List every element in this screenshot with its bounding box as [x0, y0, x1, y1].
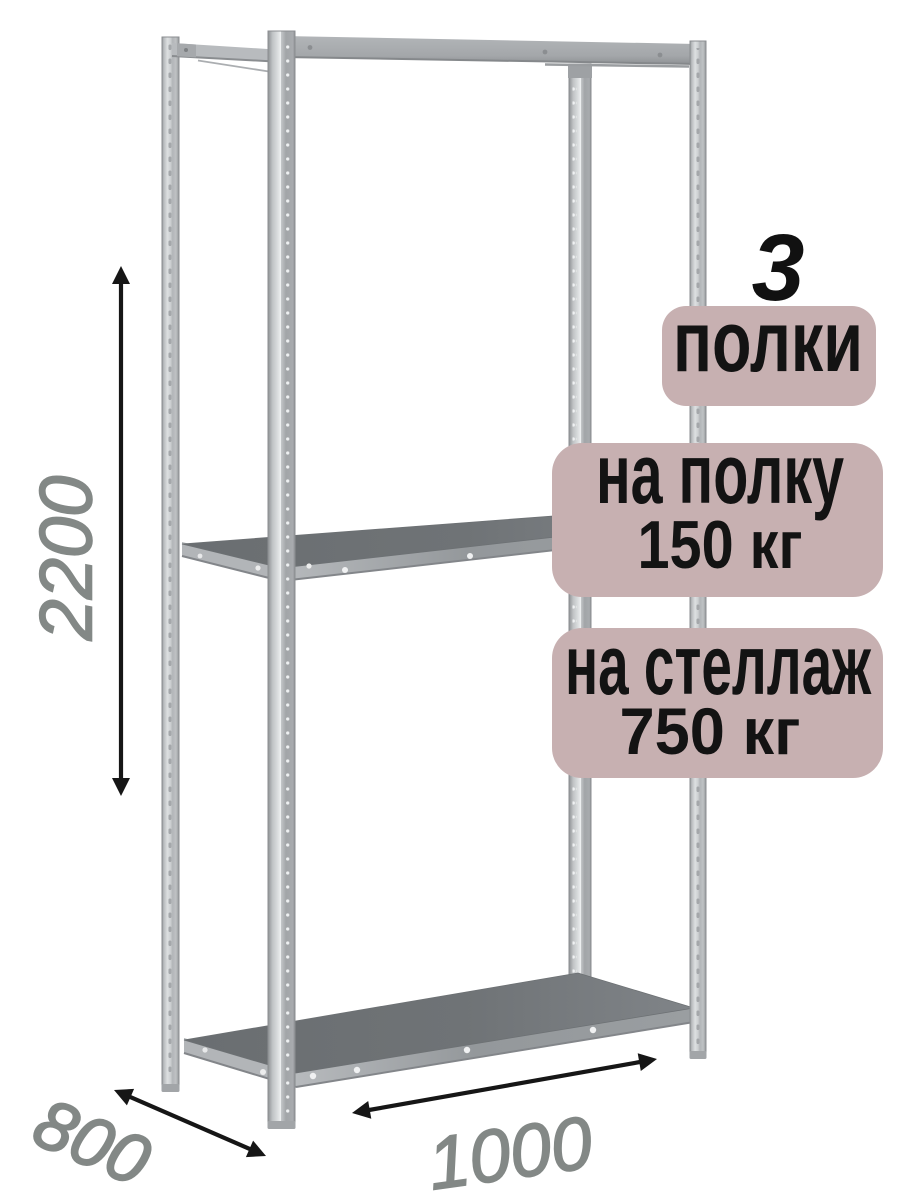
svg-text:2200: 2200	[25, 476, 108, 642]
svg-text:150 кг: 150 кг	[638, 507, 803, 583]
svg-text:750 кг: 750 кг	[620, 694, 801, 768]
svg-text:полки: полки	[673, 294, 863, 390]
